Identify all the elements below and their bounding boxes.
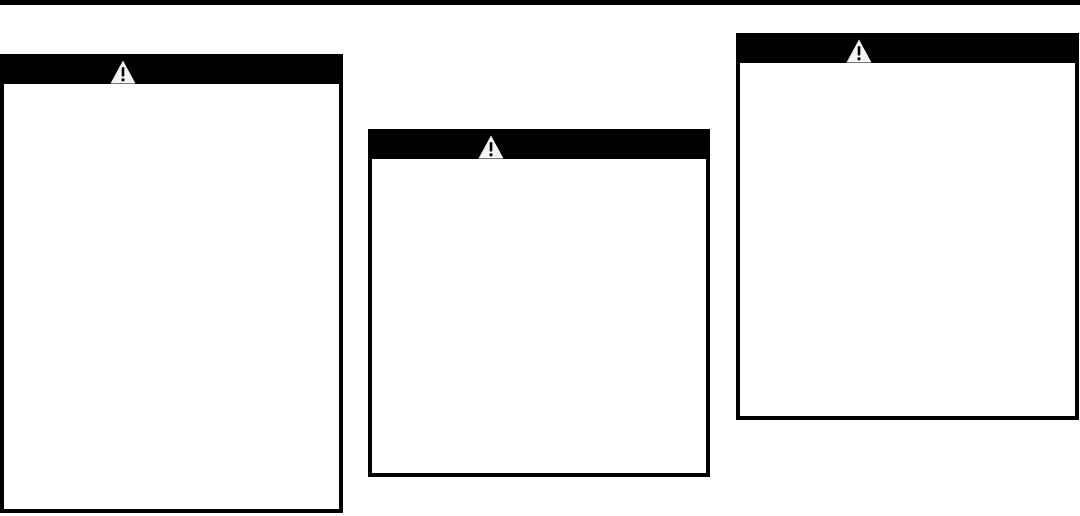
warning-box-header (4, 58, 339, 84)
warning-box-header (740, 37, 1075, 63)
page-top-rule (0, 0, 1080, 5)
warning-box-middle (368, 129, 710, 477)
warning-box-right (736, 33, 1079, 420)
warning-box-body (372, 159, 706, 473)
warning-box-header (372, 133, 706, 159)
warning-box-body (740, 63, 1075, 416)
warning-box-left (0, 54, 343, 513)
warning-triangle-icon (110, 60, 136, 84)
warning-triangle-icon (846, 39, 872, 63)
document-page (0, 0, 1080, 516)
warning-triangle-icon (478, 135, 504, 159)
warning-box-body (4, 84, 339, 509)
